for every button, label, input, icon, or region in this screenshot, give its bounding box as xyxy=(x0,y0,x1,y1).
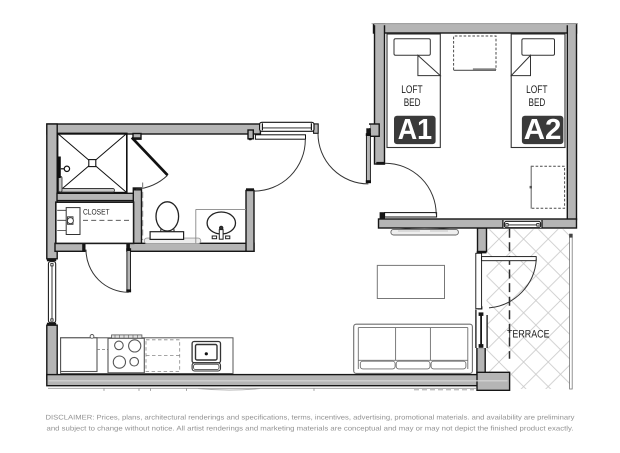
svg-text:BED: BED xyxy=(404,97,421,109)
svg-text:A2: A2 xyxy=(524,114,562,146)
svg-text:CLOSET: CLOSET xyxy=(83,208,110,217)
svg-text:TERRACE: TERRACE xyxy=(507,328,550,340)
svg-text:A1: A1 xyxy=(398,114,432,146)
svg-text:BED: BED xyxy=(529,97,546,109)
svg-text:LOFT: LOFT xyxy=(401,84,423,96)
svg-text:LOFT: LOFT xyxy=(526,84,548,96)
svg-text:DISCLAIMER: Prices, plans, arc: DISCLAIMER: Prices, plans, architectural… xyxy=(46,415,576,422)
svg-text:and subject to change without: and subject to change without notice. Al… xyxy=(47,426,574,433)
